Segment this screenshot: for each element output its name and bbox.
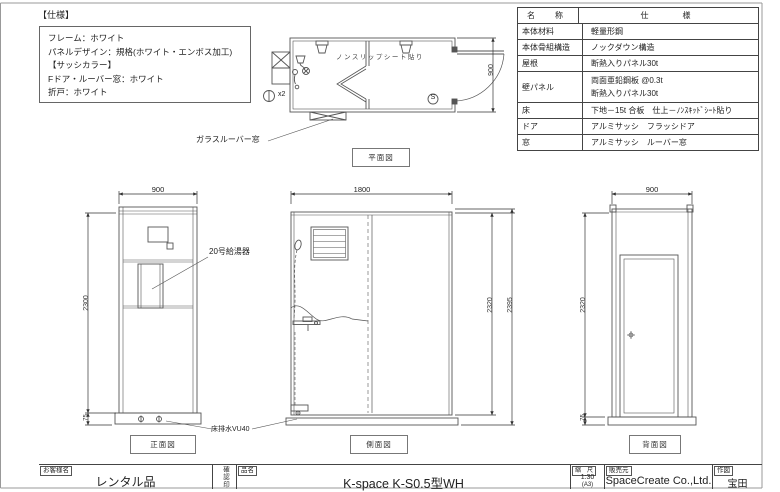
row-name: ドア [518, 119, 583, 134]
seller-value: SpaceCreate Co.,Ltd. [605, 475, 712, 487]
row-name: 床 [518, 103, 583, 118]
side-dim-height-outer: 2395 [507, 290, 517, 320]
side-view-drawing [286, 212, 458, 425]
spec-table-header-name: 名 称 [518, 8, 579, 23]
title-block-seller: 販売元 SpaceCreate Co.,Ltd. [604, 465, 712, 489]
side-view-dimensions [291, 191, 515, 425]
row-spec: 下地－15t 合板 仕上－ﾉﾝｽｷｯﾄﾞｼｰﾄ貼り [583, 103, 758, 118]
title-block-scale: 縮 尺 1:30 (A3) [570, 465, 604, 489]
plan-view-label-text: 平面図 [368, 152, 394, 163]
row-spec: 両面亜鉛鋼板 @0.3t 断熱入りパネル30t [583, 72, 758, 102]
rear-dim-width: 900 [628, 185, 676, 194]
spec-note-title: 【仕様】 [38, 8, 74, 21]
side-view-label-text: 側面図 [366, 439, 392, 450]
spec-table-header: 名 称 仕 様 [518, 8, 758, 23]
rear-view-dimensions [582, 191, 692, 425]
water-heater-annotation: 20号給湯器 [209, 246, 250, 257]
shower-symbol-label: S [429, 94, 437, 101]
row-name: 本体材料 [518, 24, 583, 39]
rear-view-drawing [608, 205, 696, 425]
nonslip-annotation: ノンスリップシート貼り [336, 51, 424, 61]
qty-label: x2 [278, 91, 285, 98]
louver-window-annotation: ガラスルーバー窓 [196, 134, 260, 145]
front-dim-base: 75 [84, 410, 93, 426]
title-block-product: 品名 K-space K-S0.5型WH [236, 465, 570, 489]
title-block-customer: お客様名 レンタル品 [39, 465, 212, 489]
spec-note-line: フレーム：ホワイト [48, 32, 250, 46]
title-block-stamp: 確認印 [212, 465, 236, 489]
front-view-label-text: 正面図 [150, 439, 176, 450]
floor-drain-annotation: 床排水VU40 [211, 424, 250, 434]
row-name: 壁パネル [518, 72, 583, 102]
title-block-author: 作図 宝田 [712, 465, 762, 489]
front-view-drawing [115, 207, 297, 429]
table-row: 窓 アルミサッシ ルーバー窓 [518, 134, 758, 150]
spec-note-line: Fドア・ルーバー窓：ホワイト [48, 73, 250, 87]
row-spec: アルミサッシ ルーバー窓 [583, 135, 758, 150]
author-value: 宝田 [713, 475, 762, 490]
front-dim-height: 2300 [83, 288, 93, 318]
spec-table-header-spec: 仕 様 [579, 8, 758, 23]
rear-dim-height: 2320 [580, 290, 590, 320]
table-row: 屋根 断熱入りパネル30t [518, 55, 758, 71]
front-dim-width: 900 [134, 185, 182, 194]
paper-size: (A3) [571, 482, 604, 488]
row-spec-line1: 両面亜鉛鋼板 @0.3t [591, 74, 663, 87]
spec-note-line: 【サッシカラー】 [48, 59, 250, 73]
side-dim-height-inner: 2320 [487, 290, 497, 320]
stamp-label: 確認印 [220, 466, 230, 489]
row-name: 屋根 [518, 56, 583, 71]
table-row: 本体材料 軽量形鋼 [518, 23, 758, 39]
row-name: 本体骨組構造 [518, 40, 583, 55]
table-row: ドア アルミサッシ フラッシドア [518, 118, 758, 134]
scale-value: 1:30 [571, 474, 604, 481]
product-value: K-space K-S0.5型WH [237, 473, 570, 492]
side-dim-width: 1800 [338, 185, 386, 194]
row-spec-line2: 断熱入りパネル30t [591, 87, 658, 100]
spec-note-line: 折戸：ホワイト [48, 86, 250, 100]
plan-dim-depth: 900 [488, 55, 498, 85]
customer-value: レンタル品 [39, 473, 212, 490]
front-view-label: 正面図 [130, 435, 196, 454]
plan-view-label: 平面図 [352, 148, 410, 167]
table-row: 床 下地－15t 合板 仕上－ﾉﾝｽｷｯﾄﾞｼｰﾄ貼り [518, 102, 758, 118]
table-row: 壁パネル 両面亜鉛鋼板 @0.3t 断熱入りパネル30t [518, 71, 758, 102]
spec-note-box: フレーム：ホワイト パネルデザイン：規格(ホワイト・エンボス加工) 【サッシカラ… [39, 26, 251, 103]
row-spec: ノックダウン構造 [583, 40, 758, 55]
row-spec: 断熱入りパネル30t [583, 56, 758, 71]
title-block: お客様名 レンタル品 確認印 品名 K-space K-S0.5型WH 縮 尺 … [39, 464, 762, 489]
spec-note-line: パネルデザイン：規格(ホワイト・エンボス加工) [48, 46, 250, 60]
drawing-sheet: { "spec_note": { "title": "【仕様】", "lines… [0, 0, 780, 490]
rear-view-label-text: 背面図 [642, 439, 668, 450]
rear-dim-base: 75 [581, 410, 590, 426]
table-row: 本体骨組構造 ノックダウン構造 [518, 39, 758, 55]
row-spec: アルミサッシ フラッシドア [583, 119, 758, 134]
row-spec: 軽量形鋼 [583, 24, 758, 39]
rear-view-label: 背面図 [629, 435, 681, 454]
side-view-label: 側面図 [350, 435, 408, 454]
row-name: 窓 [518, 135, 583, 150]
spec-table: 名 称 仕 様 本体材料 軽量形鋼 本体骨組構造 ノックダウン構造 屋根 断熱入… [517, 7, 759, 151]
